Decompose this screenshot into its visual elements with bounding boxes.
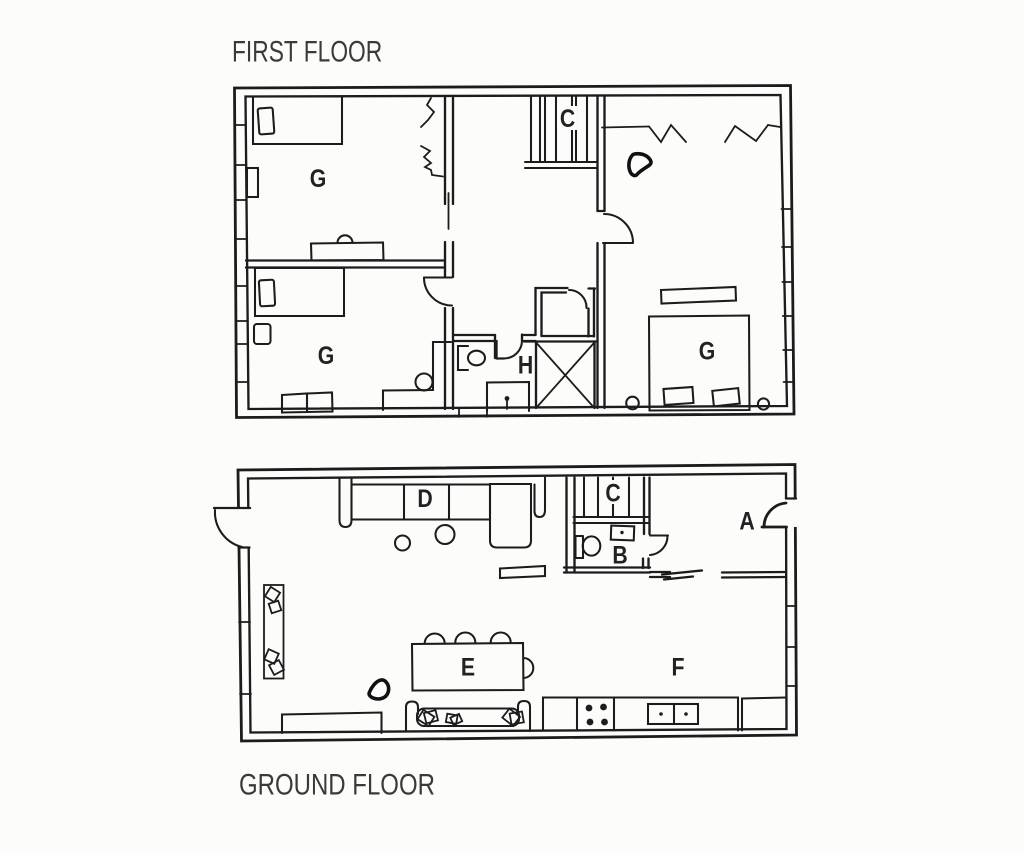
- svg-text:E: E: [461, 653, 475, 681]
- svg-text:C: C: [605, 479, 621, 507]
- svg-text:GROUND FLOOR: GROUND FLOOR: [239, 767, 435, 801]
- svg-text:G: G: [699, 337, 716, 365]
- svg-text:G: G: [318, 341, 335, 369]
- svg-text:C: C: [560, 104, 576, 132]
- svg-text:H: H: [518, 351, 533, 379]
- svg-text:D: D: [417, 484, 432, 512]
- svg-text:A: A: [739, 507, 755, 535]
- svg-text:FIRST FLOOR: FIRST FLOOR: [232, 34, 382, 68]
- svg-text:F: F: [672, 653, 685, 681]
- svg-text:B: B: [612, 541, 627, 569]
- svg-text:G: G: [310, 164, 327, 192]
